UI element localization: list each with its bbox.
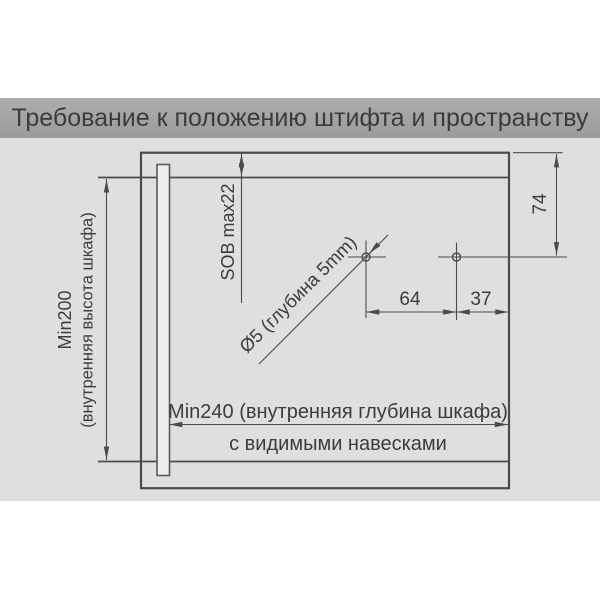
label-dist-74: 74 — [530, 193, 551, 215]
back-panel — [157, 165, 170, 476]
arrow-height-bottom — [104, 447, 109, 460]
label-dist-64: 64 — [399, 289, 421, 310]
arrow-64-left — [366, 309, 379, 314]
arrow-64-right — [443, 309, 456, 314]
label-hole-spec: Ø5 (глубина 5mm) — [235, 231, 360, 356]
label-top-clearance: SOB max22 — [218, 183, 238, 280]
label-depth-note: с видимыми навесками — [229, 433, 447, 455]
arrow-74-top — [554, 154, 559, 167]
arrow-74-bottom — [554, 242, 559, 255]
label-height-note: (внутренняя высота шкафа) — [79, 212, 97, 427]
arrow-height-top — [104, 180, 109, 193]
label-height-min: Min200 — [55, 290, 75, 349]
arrow-hole-leader — [367, 242, 380, 255]
arrow-37-right — [495, 309, 508, 314]
installation-diagram: Min200 (внутренняя высота шкафа) SOB max… — [0, 0, 600, 600]
label-dist-37: 37 — [470, 289, 491, 310]
arrow-sob-bottom — [239, 163, 244, 176]
arrow-37-left — [457, 309, 470, 314]
label-depth-min: Min240 (внутренняя глубина шкафа) — [168, 401, 508, 423]
